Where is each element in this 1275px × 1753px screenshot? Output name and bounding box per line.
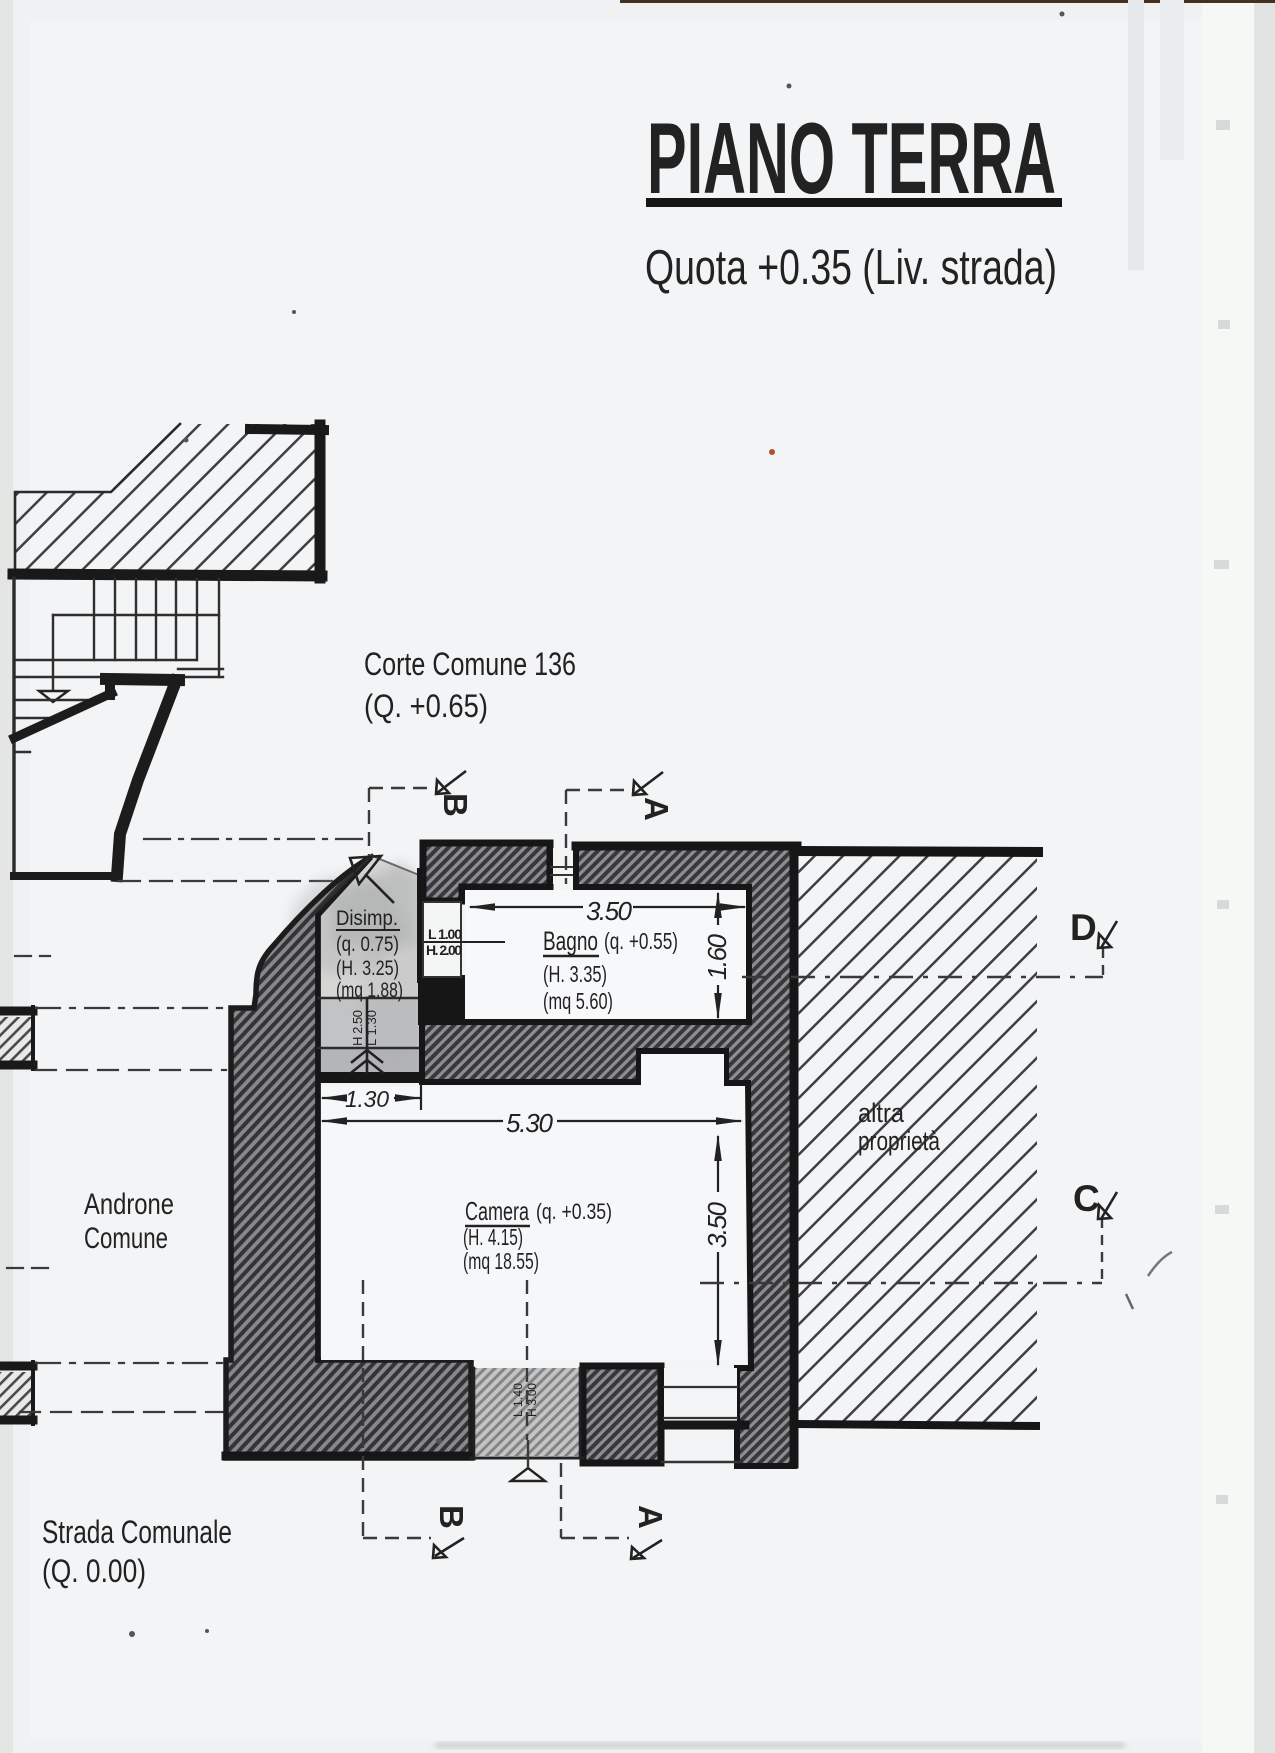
svg-text:(mq 18.55): (mq 18.55) — [463, 1248, 539, 1274]
svg-text:Comune: Comune — [84, 1222, 168, 1255]
svg-text:H. 2.00: H. 2.00 — [426, 942, 462, 958]
svg-text:C: C — [1073, 1178, 1100, 1219]
svg-text:Corte Comune 136: Corte Comune 136 — [364, 646, 576, 682]
svg-text:(H. 4.15): (H. 4.15) — [463, 1224, 523, 1250]
svg-text:B: B — [433, 1505, 470, 1529]
svg-text:L 1.40: L 1.40 — [511, 1383, 525, 1417]
svg-text:H 2.50: H 2.50 — [350, 1010, 365, 1046]
svg-text:3.50: 3.50 — [586, 896, 633, 926]
svg-text:Androne: Androne — [84, 1188, 174, 1221]
svg-text:(Q. 0.00): (Q. 0.00) — [42, 1553, 146, 1589]
svg-text:altra: altra — [858, 1098, 905, 1128]
svg-text:3.50: 3.50 — [702, 1201, 732, 1248]
svg-text:1.60: 1.60 — [702, 933, 732, 980]
svg-text:(H. 3.35): (H. 3.35) — [543, 961, 607, 987]
svg-text:(q. +0.35): (q. +0.35) — [536, 1199, 612, 1224]
svg-text:L 1.30: L 1.30 — [364, 1010, 379, 1046]
svg-text:(mq 5.60): (mq 5.60) — [543, 988, 613, 1014]
svg-text:(Q. +0.65): (Q. +0.65) — [364, 688, 488, 724]
svg-text:A: A — [638, 797, 675, 821]
svg-text:L 1.00: L 1.00 — [428, 926, 462, 942]
svg-text:A: A — [632, 1505, 669, 1529]
svg-text:D: D — [1070, 907, 1097, 948]
svg-text:(H. 3.25): (H. 3.25) — [336, 957, 399, 980]
svg-text:Strada Comunale: Strada Comunale — [42, 1514, 232, 1550]
svg-text:B: B — [437, 793, 474, 817]
svg-text:5.30: 5.30 — [506, 1108, 554, 1138]
svg-text:Bagno: Bagno — [543, 926, 598, 956]
svg-text:1.30: 1.30 — [345, 1086, 389, 1112]
svg-text:proprietà: proprietà — [858, 1126, 941, 1156]
svg-text:Camera: Camera — [465, 1196, 529, 1226]
svg-text:Quota +0.35 (Liv. strada): Quota +0.35 (Liv. strada) — [645, 241, 1057, 295]
svg-text:(q. +0.55): (q. +0.55) — [604, 928, 678, 954]
svg-text:Disimp.: Disimp. — [336, 907, 398, 930]
svg-text:(mq 1.88): (mq 1.88) — [336, 979, 403, 1002]
svg-text:(q. 0.75): (q. 0.75) — [336, 933, 399, 956]
